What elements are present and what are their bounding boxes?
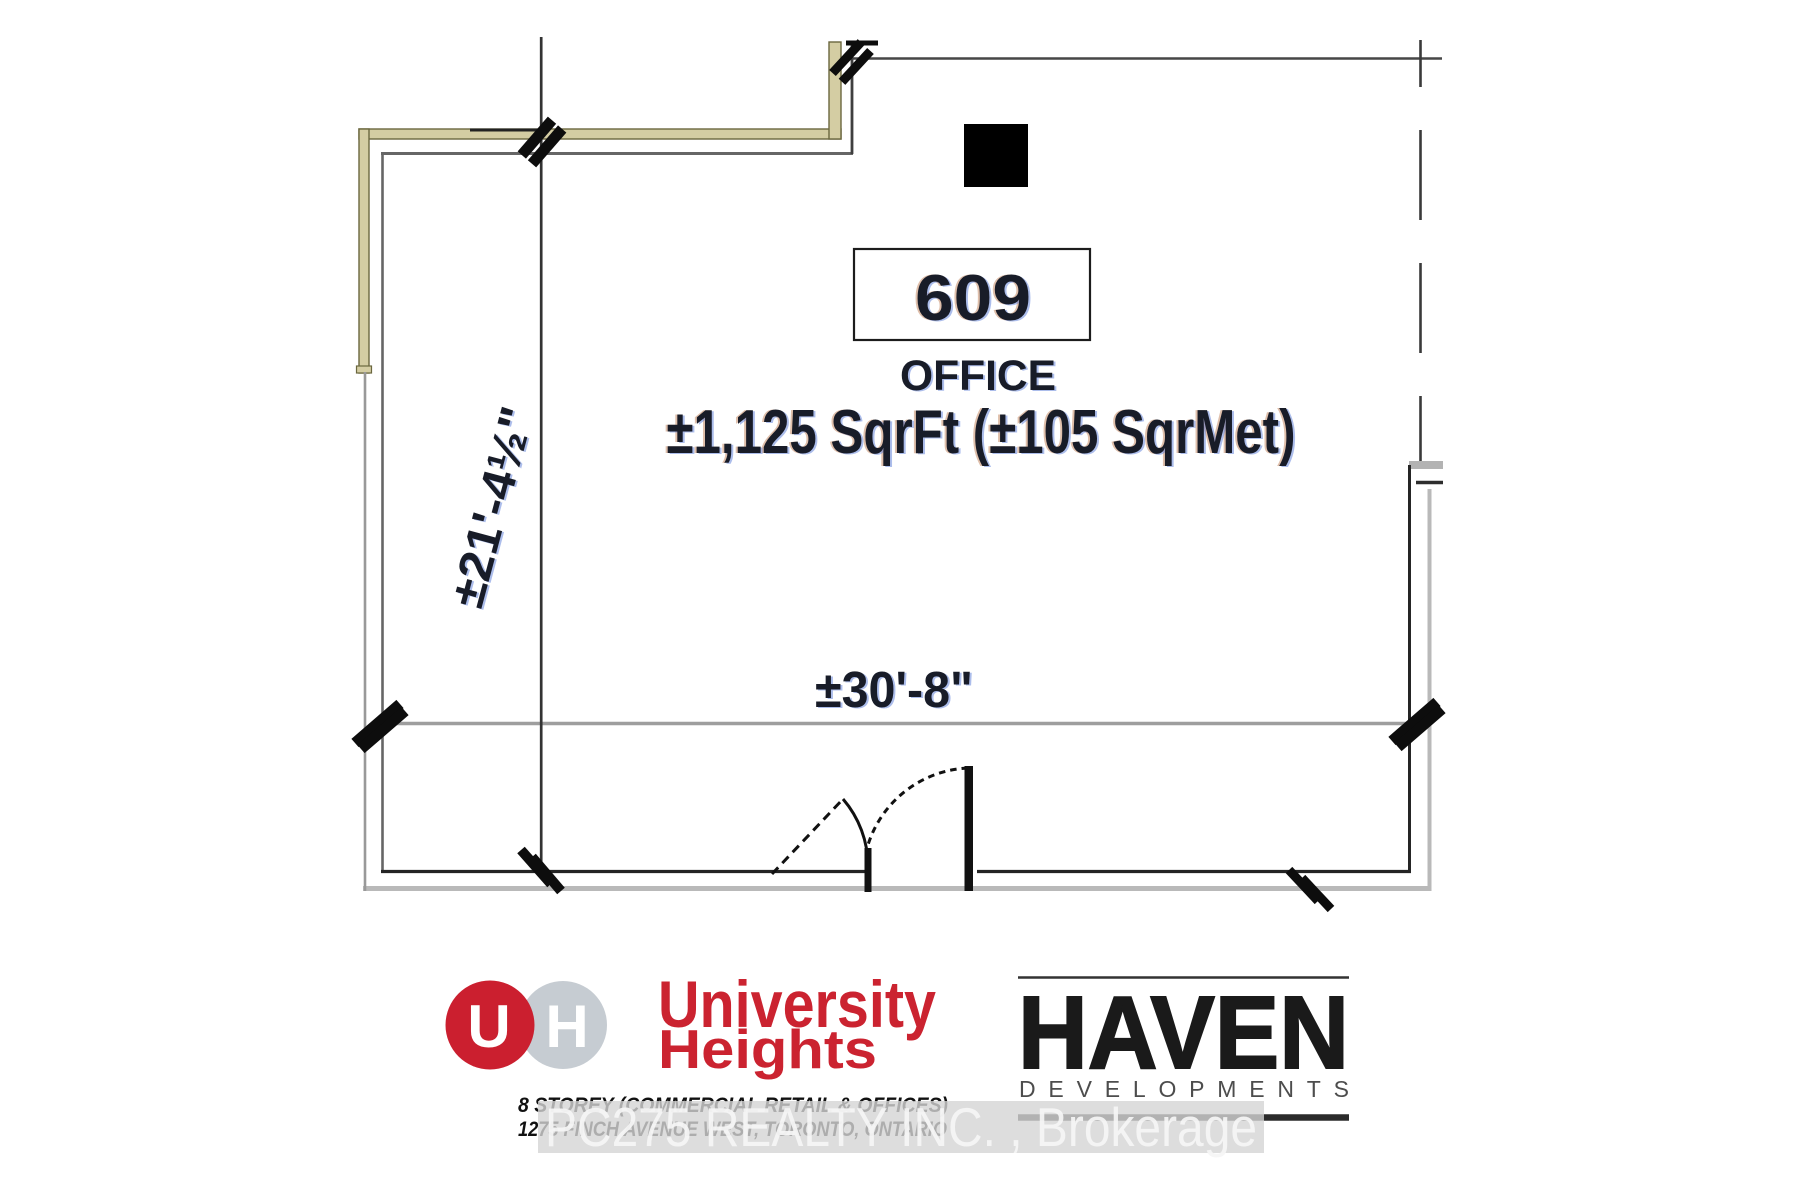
- svg-text:HAVEN: HAVEN: [1018, 975, 1349, 1090]
- svg-text:±1,125 SqrFt (±105 SqrMet): ±1,125 SqrFt (±105 SqrMet): [667, 398, 1296, 467]
- svg-text:Heights: Heights: [658, 1018, 877, 1080]
- svg-text:±30'-8": ±30'-8": [815, 661, 973, 718]
- svg-text:H: H: [545, 993, 588, 1060]
- svg-text:U: U: [467, 993, 510, 1060]
- svg-text:OFFICE: OFFICE: [900, 352, 1056, 400]
- svg-text:PC275 REALTY INC. , Brokerage: PC275 REALTY INC. , Brokerage: [545, 1096, 1257, 1158]
- svg-text:609: 609: [915, 261, 1031, 334]
